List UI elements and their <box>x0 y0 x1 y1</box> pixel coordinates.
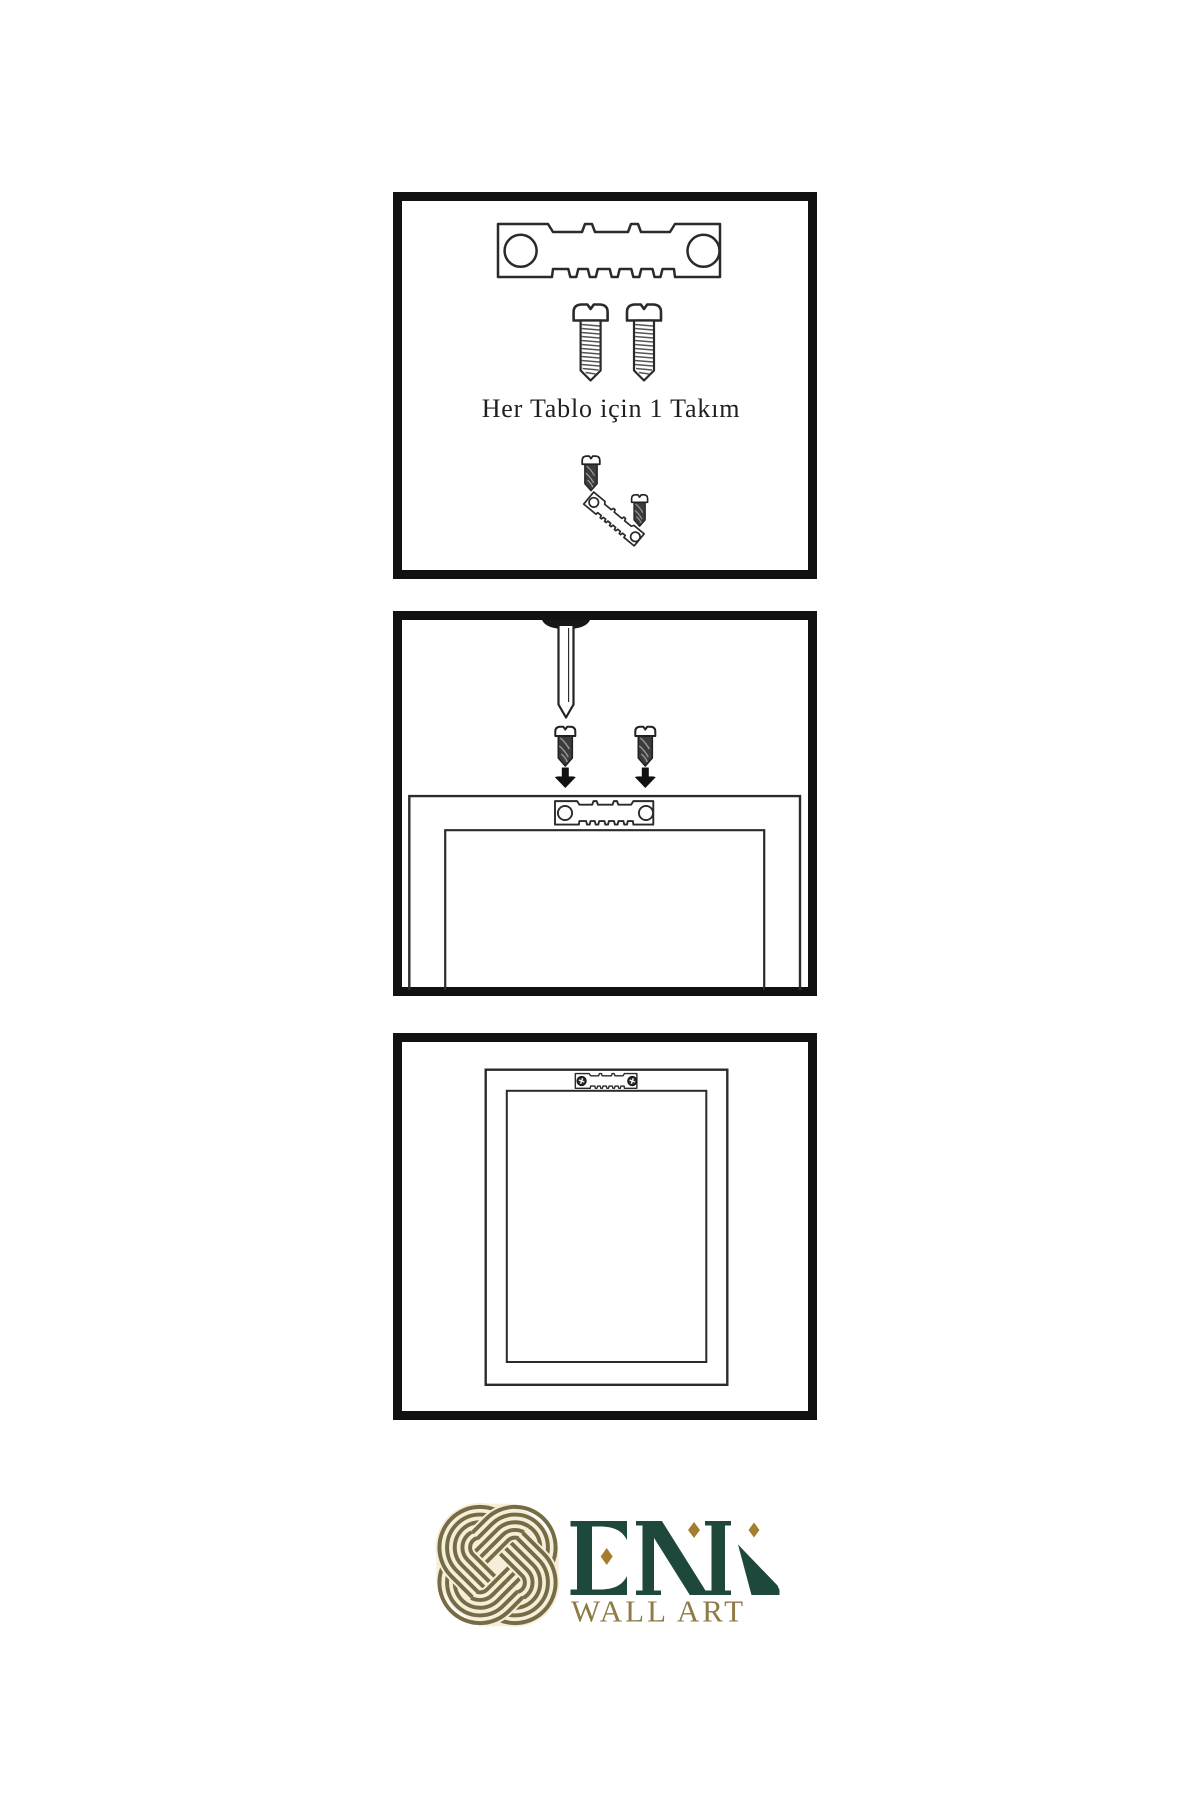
svg-text:Her Tablo için 1 Takım: Her Tablo için 1 Takım <box>482 394 741 423</box>
svg-text:WALL ART: WALL ART <box>571 1594 746 1629</box>
